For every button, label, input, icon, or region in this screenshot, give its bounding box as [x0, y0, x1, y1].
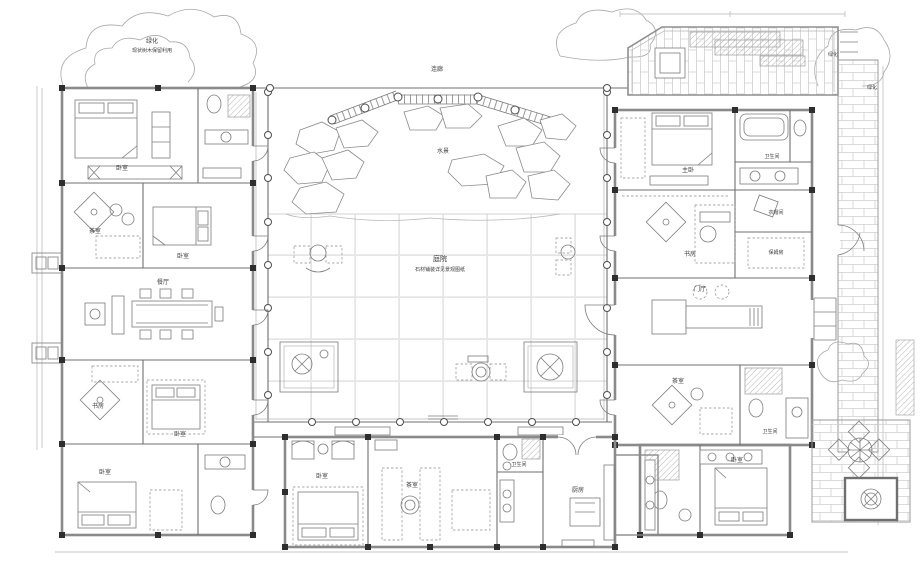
tatami	[420, 468, 440, 540]
label-17: 保姆房	[768, 249, 783, 256]
bed	[153, 207, 211, 245]
label-7: 茶室	[89, 227, 101, 235]
counter	[645, 460, 655, 530]
tea-table	[80, 380, 120, 420]
toilet	[503, 444, 517, 460]
console-table	[686, 306, 762, 328]
tv-cabinet	[203, 168, 241, 178]
label-2: 连廊	[431, 65, 443, 73]
bed	[715, 468, 767, 525]
tea-table	[652, 385, 692, 425]
label-8: 卧室	[177, 252, 189, 260]
chair	[182, 289, 193, 298]
chair	[160, 330, 171, 339]
pavilion	[845, 478, 897, 520]
label-21: 卧室	[731, 456, 743, 464]
desk-chair	[700, 226, 716, 242]
entry-steps	[814, 298, 836, 340]
kitchen-counter	[604, 465, 614, 540]
label-26: 绿化	[828, 51, 838, 58]
tea-round-table	[401, 496, 419, 514]
planter-box	[655, 48, 685, 78]
doors	[253, 146, 268, 505]
label-9: 餐厅	[157, 278, 169, 286]
counter	[500, 480, 514, 522]
label-1: 现状树木保留利用	[132, 47, 172, 54]
rug	[96, 236, 140, 258]
label-24: 厨房	[572, 486, 584, 494]
north-east-yard	[628, 27, 858, 95]
sideboard	[112, 296, 124, 334]
floor-plan-drawing: 绿化现状树木保留利用连廊水景庭院石材铺装详见景观图纸卧室茶室卧室餐厅书房卧室卧室…	[0, 0, 920, 565]
tatami	[382, 468, 402, 540]
steps	[840, 32, 858, 60]
bench	[518, 427, 563, 435]
label-25: 卫生间	[511, 461, 526, 468]
label-0: 绿化	[146, 37, 158, 45]
armchair	[292, 441, 314, 459]
label-23: 茶室	[406, 481, 418, 489]
double-door	[558, 437, 596, 455]
toilet	[207, 95, 221, 113]
chair	[140, 289, 151, 298]
shower	[228, 95, 250, 117]
bed	[652, 113, 712, 165]
toilet	[794, 120, 806, 136]
side-table	[318, 444, 328, 454]
tea-table	[646, 202, 686, 242]
left-wing	[59, 85, 268, 538]
hedge	[715, 40, 803, 55]
label-13: 主卧	[682, 166, 694, 174]
label-19: 茶室	[672, 377, 684, 385]
armchair	[332, 441, 354, 459]
stool	[122, 213, 134, 225]
label-14: 卫生间	[764, 153, 779, 160]
floor-plan-canvas: 绿化现状树木保留利用连廊水景庭院石材铺装详见景观图纸卧室茶室卧室餐厅书房卧室卧室…	[0, 0, 920, 565]
label-22: 卧室	[316, 472, 328, 480]
side-table	[85, 303, 105, 325]
label-16: 衣帽间	[768, 209, 783, 216]
label-12: 卧室	[99, 468, 111, 476]
stool	[691, 388, 703, 400]
sink	[503, 462, 511, 470]
tea-table	[74, 192, 114, 232]
right-wing	[585, 107, 836, 538]
wardrobe	[621, 118, 645, 178]
desk	[695, 205, 735, 263]
bench	[335, 427, 390, 435]
bed	[78, 482, 136, 528]
lantern	[715, 285, 729, 299]
east-path	[838, 60, 878, 452]
rug	[700, 408, 732, 434]
label-11: 卧室	[174, 430, 186, 438]
chair	[140, 330, 151, 339]
label-5: 石材铺装详见景观图纸	[415, 266, 465, 273]
bottom-wing	[282, 434, 658, 550]
vanity	[786, 398, 808, 438]
chair	[160, 289, 171, 298]
shrubs	[896, 340, 914, 415]
chair	[182, 330, 193, 339]
wardrobe	[150, 490, 182, 530]
label-20: 卫生间	[762, 428, 777, 435]
toilet	[211, 496, 225, 514]
shower	[522, 439, 540, 459]
label-27: 绿化	[867, 84, 877, 91]
bed	[293, 487, 363, 545]
rug	[92, 366, 138, 382]
sink	[679, 509, 691, 521]
tatami	[452, 490, 490, 530]
toilet	[749, 399, 763, 417]
label-4: 庭院	[433, 254, 447, 263]
hedge	[760, 56, 805, 66]
bed	[75, 100, 137, 158]
low-cabinet	[650, 176, 708, 185]
label-15: 书房	[684, 250, 696, 258]
low-cabinet	[88, 166, 182, 179]
console-block	[652, 300, 686, 334]
chair	[215, 307, 223, 321]
label-10: 书房	[92, 402, 104, 410]
cabinet	[152, 112, 170, 158]
label-18: 门厅	[694, 285, 706, 293]
double-vanity	[740, 168, 798, 184]
bed	[147, 380, 205, 434]
label-6: 卧室	[116, 164, 128, 172]
cabinet	[375, 440, 397, 450]
shower	[745, 368, 782, 394]
label-3: 水景	[437, 147, 449, 155]
